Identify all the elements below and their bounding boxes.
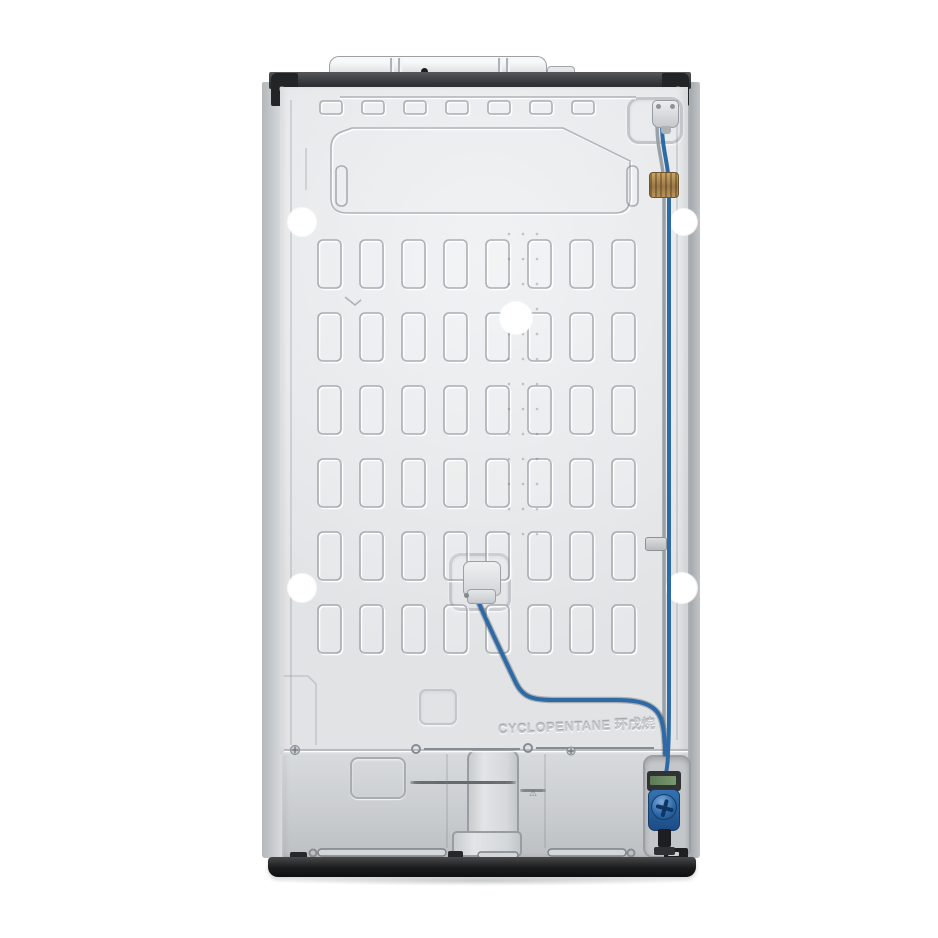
emboss-square-row <box>320 101 596 116</box>
weld-dot <box>536 358 539 361</box>
weld-dot <box>508 383 511 386</box>
emboss-cell <box>360 386 383 434</box>
emboss-cell <box>570 459 593 507</box>
water-inlet-fitting <box>652 100 679 128</box>
weld-dot <box>508 483 511 486</box>
panel-embossing <box>0 0 938 938</box>
emboss-cell <box>402 532 425 580</box>
weld-dot <box>536 458 539 461</box>
emboss-cell <box>360 459 383 507</box>
fitting-screw <box>464 593 469 598</box>
emboss-cell <box>528 240 551 288</box>
fitting-screw <box>670 104 675 109</box>
emboss-cell <box>402 386 425 434</box>
weld-dot <box>536 508 539 511</box>
emboss-cell <box>402 313 425 361</box>
emboss-cell <box>570 240 593 288</box>
emboss-cell <box>528 532 551 580</box>
emboss-cell <box>444 386 467 434</box>
panel-hole <box>667 573 697 603</box>
fitting-nozzle <box>661 126 671 134</box>
emboss-cell <box>402 240 425 288</box>
weld-dot <box>508 458 511 461</box>
emboss-cell <box>360 240 383 288</box>
valve-outlet <box>658 829 671 847</box>
weld-dot <box>536 483 539 486</box>
weld-dot <box>508 233 511 236</box>
weld-dot <box>522 433 525 436</box>
emboss-cell <box>612 313 635 361</box>
emboss-cell <box>570 313 593 361</box>
weld-dot <box>522 508 525 511</box>
emboss-cell <box>528 605 551 653</box>
emboss-square <box>362 101 384 114</box>
weld-dot <box>522 483 525 486</box>
emboss-cell <box>318 459 341 507</box>
valve-foot <box>654 847 675 855</box>
emboss-square <box>488 101 510 114</box>
emboss-square <box>320 101 342 114</box>
emboss-cell <box>318 386 341 434</box>
emboss-cell <box>570 386 593 434</box>
emboss-cell <box>318 605 341 653</box>
brass-compression-fitting <box>649 172 679 198</box>
emboss-square <box>446 101 468 114</box>
weld-dot <box>536 383 539 386</box>
emboss-cell <box>360 605 383 653</box>
emboss-cell <box>612 240 635 288</box>
emboss-cell <box>612 532 635 580</box>
weld-dot <box>508 533 511 536</box>
floor-shadow <box>276 876 688 886</box>
emboss-cell <box>444 240 467 288</box>
weld-dot <box>536 308 539 311</box>
water-lines <box>478 124 669 792</box>
emboss-square <box>530 101 552 114</box>
panel-hole <box>500 302 532 334</box>
weld-dot <box>508 433 511 436</box>
emboss-cell <box>360 313 383 361</box>
emboss-cell <box>402 605 425 653</box>
fitting-screw <box>656 104 661 109</box>
weld-dot <box>536 258 539 261</box>
capillary-tube <box>657 124 664 742</box>
weld-dot <box>508 508 511 511</box>
weld-dot <box>536 408 539 411</box>
weld-dot <box>508 408 511 411</box>
refrigerator-back-photo: ⚠ CYCLOPENTANE 环戊烷 <box>0 0 938 938</box>
weld-dot <box>522 383 525 386</box>
panel-hole <box>288 208 316 236</box>
emboss-cell <box>528 386 551 434</box>
weld-dot <box>522 458 525 461</box>
emboss-cell <box>444 459 467 507</box>
base-plate <box>268 857 696 877</box>
emboss-cell <box>612 386 635 434</box>
emboss-cell <box>318 240 341 288</box>
weld-dot <box>522 283 525 286</box>
tube-clip <box>645 537 667 551</box>
weld-dot <box>508 358 511 361</box>
emboss-cell <box>318 313 341 361</box>
weld-dot <box>522 408 525 411</box>
fitting-lower-block <box>467 589 496 604</box>
emboss-cell <box>486 386 509 434</box>
emboss-cell <box>612 459 635 507</box>
emboss-cell <box>570 605 593 653</box>
valve-sticker <box>650 776 676 785</box>
weld-dot <box>522 258 525 261</box>
handle-recess <box>331 128 638 215</box>
weld-dot <box>508 258 511 261</box>
weld-dot <box>522 533 525 536</box>
weld-dot <box>536 533 539 536</box>
emboss-square <box>404 101 426 114</box>
weld-dot <box>536 433 539 436</box>
panel-hole <box>671 209 697 235</box>
emboss-cell <box>444 313 467 361</box>
weld-dot <box>508 283 511 286</box>
water-line-fitting-cover <box>463 561 501 596</box>
emboss-cell <box>402 459 425 507</box>
emboss-cell <box>360 532 383 580</box>
emboss-cell <box>486 459 509 507</box>
panel-hole <box>288 574 316 602</box>
weld-dot <box>522 358 525 361</box>
emboss-cell <box>444 605 467 653</box>
weld-dot <box>536 233 539 236</box>
emboss-cell <box>486 240 509 288</box>
screws <box>291 746 678 810</box>
weld-dot <box>536 283 539 286</box>
emboss-cell <box>318 532 341 580</box>
emboss-square <box>572 101 594 114</box>
emboss-cell <box>612 605 635 653</box>
emboss-cell <box>528 459 551 507</box>
weld-dot <box>536 333 539 336</box>
weld-dot <box>522 233 525 236</box>
emboss-cell <box>570 532 593 580</box>
water-valve-assembly <box>647 771 683 857</box>
